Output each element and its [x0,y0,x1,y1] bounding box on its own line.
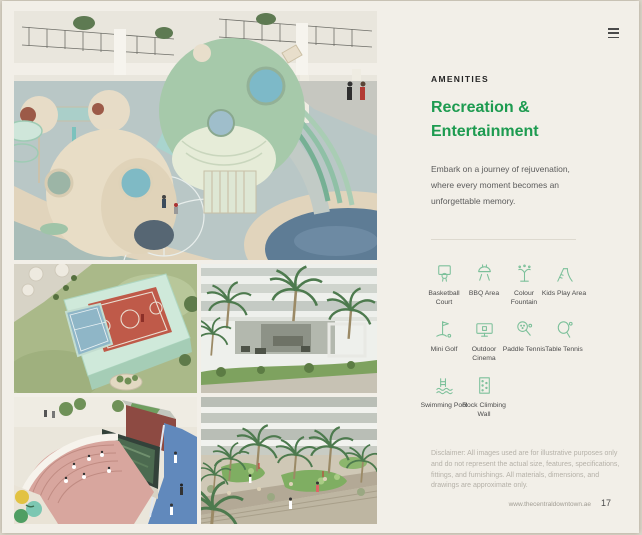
divider [431,239,576,240]
brochure-page: AMENITIES Recreation & Entertainment Emb… [2,1,639,533]
kids-play-area-icon [553,262,576,285]
section-description: Embark on a journey of rejuvenation, whe… [431,161,589,209]
amenity-bbq-area: BBQ Area [464,262,504,307]
photo-building-terrace [201,264,377,393]
amenity-rock-climbing-wall: Rock Climbing Wall [464,374,504,419]
amenity-label: Kids Play Area [540,289,588,298]
photo-courtyard-mini-golf [201,397,377,524]
website-link[interactable]: www.thecentraldowntown.ae [509,501,591,508]
mini-golf-icon [433,318,456,341]
photo-amphitheatre-outdoor-cinema [14,397,197,524]
amenity-paddle-tennis: Paddle Tennis [504,318,544,363]
disclaimer-text: Disclaimer: All images used are for illu… [431,449,623,492]
swimming-pool-icon [433,374,456,397]
paddle-tennis-icon [513,318,536,341]
hamburger-menu-icon[interactable] [606,28,622,44]
basketball-court-icon [433,262,456,285]
amenities-grid: Basketball Court BBQ Area Colour Fountai… [424,262,588,430]
amenity-outdoor-cinema: Outdoor Cinema [464,318,504,363]
amenity-mini-golf: Mini Golf [424,318,464,363]
amenity-label: Rock Climbing Wall [460,401,508,419]
amenity-kids-play-area: Kids Play Area [544,262,584,307]
amenity-colour-fountain: Colour Fountain [504,262,544,307]
photo-sports-courts [14,264,197,393]
page-title: Recreation & Entertainment [431,96,593,144]
amenity-basketball-court: Basketball Court [424,262,464,307]
outdoor-cinema-icon [473,318,496,341]
amenity-table-tennis: Table Tennis [544,318,584,363]
photo-kids-playground [14,11,377,260]
colour-fountain-icon [513,262,536,285]
section-kicker: AMENITIES [431,74,489,84]
bbq-area-icon [473,262,496,285]
page-number: 17 [601,498,611,508]
table-tennis-icon [553,318,576,341]
page-footer: www.thecentraldowntown.ae 17 [431,498,611,508]
rock-climbing-wall-icon [473,374,496,397]
amenity-swimming-pool: Swimming Pool [424,374,464,419]
amenity-label: Table Tennis [540,345,588,354]
